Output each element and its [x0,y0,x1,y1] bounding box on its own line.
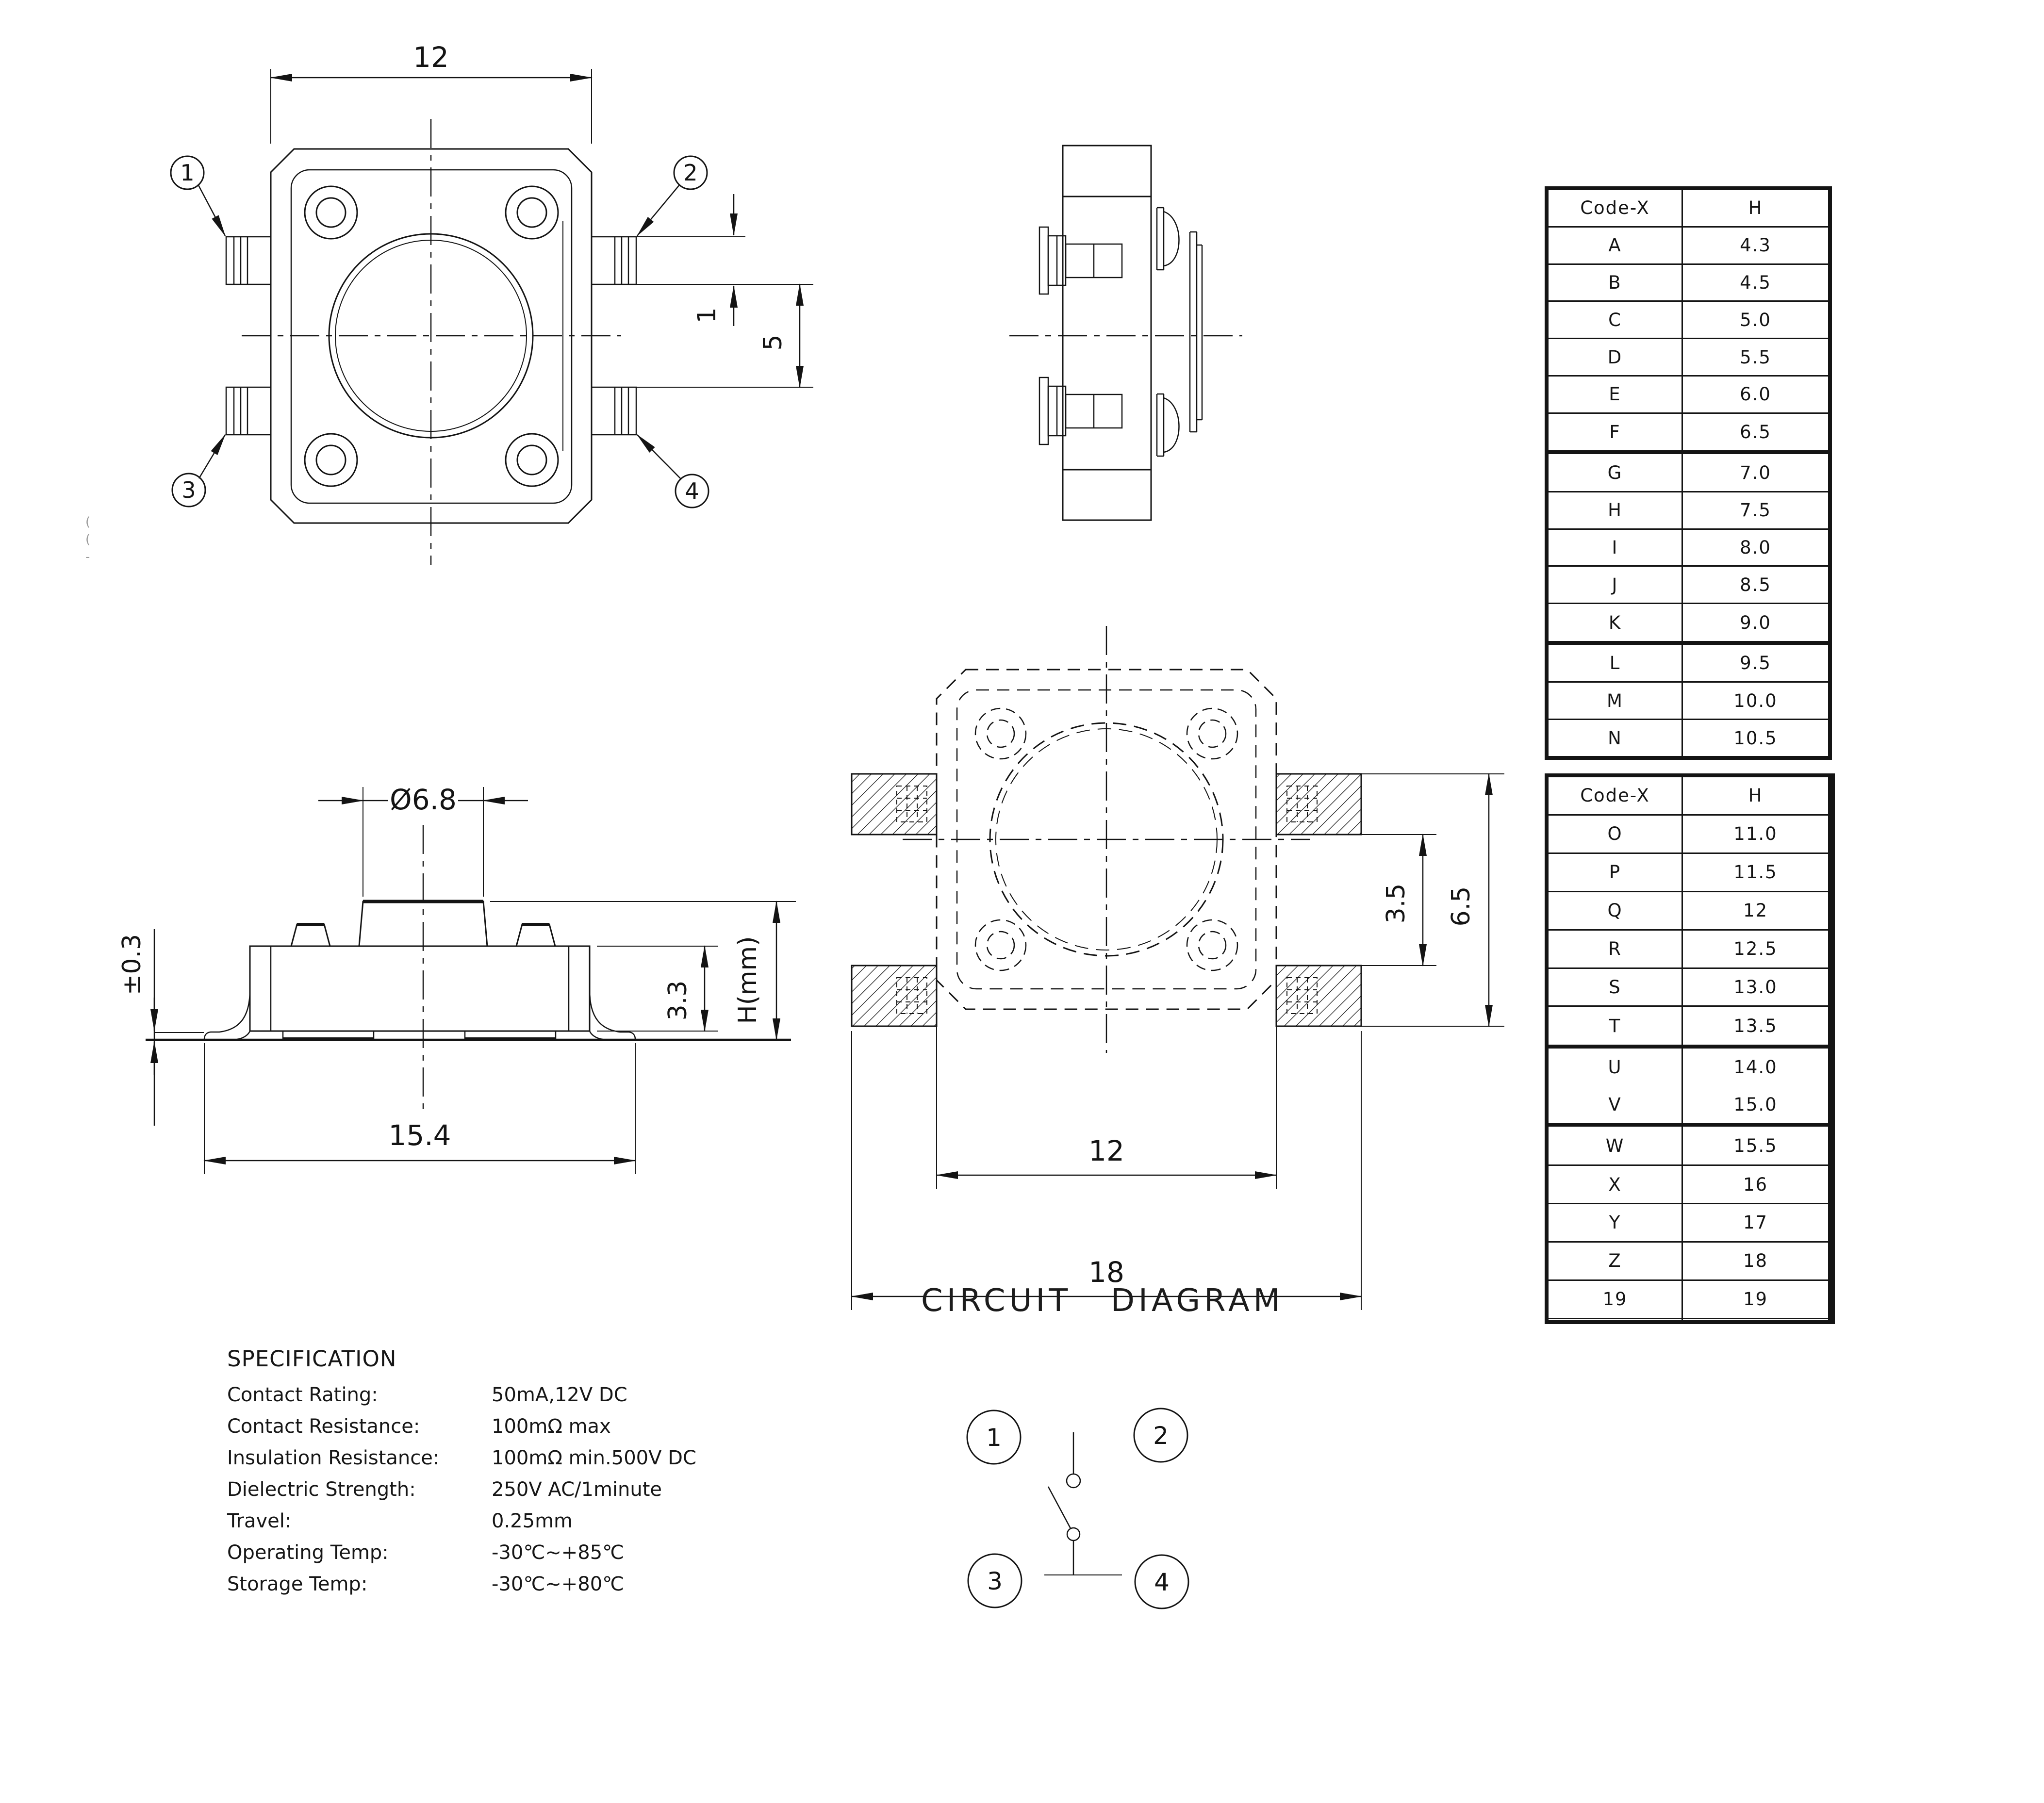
specification-block: SPECIFICATION Contact Rating:50mA,12V DC… [227,1343,696,1600]
code-table-row: C5.0 [1548,301,1829,339]
datasheet-page: { "drawing": { "top_view": { "pin_labels… [0,0,2044,1803]
spec-row: Storage Temp:-30℃~+80℃ [227,1569,696,1600]
circuit-pin4-label: 4 [1154,1568,1170,1596]
code-table-cell: T [1548,1006,1682,1047]
code-table-cell: 9.5 [1682,643,1829,682]
code-table-cell: 4.3 [1682,227,1829,264]
dim-total-height-label: H(mm) [733,936,762,1024]
code-table-row: W15.5 [1548,1125,1829,1165]
code-table-header: H [1682,777,1829,815]
pin-callouts [171,156,709,508]
dim-pad-span-label: 6.5 [1447,886,1476,927]
spec-label: Operating Temp: [227,1537,492,1569]
dim-pin-gap-label: 5 [758,334,788,350]
code-table-cell: 10.0 [1682,682,1829,720]
code-table-cell: M [1548,682,1682,720]
front-view [146,787,796,1174]
code-table-row: V15.0 [1548,1086,1829,1125]
code-table-header: Code-X [1548,777,1682,815]
code-table-cell: 9.0 [1682,604,1829,643]
code-table-cell: F [1548,413,1682,452]
code-table-cell: Y [1548,1204,1682,1242]
code-table-cell: 8.0 [1682,529,1829,566]
code-table-row: 1919 [1548,1280,1829,1318]
spec-value: -30℃~+80℃ [492,1569,624,1600]
code-table-row: Q12 [1548,891,1829,930]
code-table-cell: 12 [1682,891,1829,930]
code-table-row [1548,1318,1829,1321]
dim-overall-width [204,1043,635,1174]
code-table-cell: I [1548,529,1682,566]
code-table-cell: 19 [1682,1280,1829,1318]
pcb-view [852,626,1504,1310]
code-table-cell: G [1548,452,1682,492]
code-table-cell: 18 [1682,1242,1829,1280]
spec-label: Dielectric Strength: [227,1474,492,1506]
code-table-cell: 6.5 [1682,413,1829,452]
circuit-pin3-label: 3 [987,1567,1003,1595]
side-view [1009,146,1242,520]
code-table-cell: 15.0 [1682,1086,1829,1125]
code-table-row: P11.5 [1548,853,1829,891]
code-table-row: O11.0 [1548,815,1829,853]
code-table-cell: 7.5 [1682,492,1829,529]
code-table-row: F6.5 [1548,413,1829,452]
code-table-cell: N [1548,720,1682,757]
code-table-row: E6.0 [1548,376,1829,413]
code-table-row: A4.3 [1548,227,1829,264]
code-table-cell: 19 [1548,1280,1682,1318]
front-leads [154,990,635,1039]
code-table-header: Code-X [1548,190,1682,227]
spec-label: Contact Resistance: [227,1411,492,1442]
circuit-pin1-label: 1 [986,1424,1002,1452]
code-table-row: R12.5 [1548,930,1829,968]
dim-lead-thickness-label: ±0.3 [117,934,147,995]
dim-body-height-label: 3.3 [663,981,692,1021]
centerlines [242,119,621,565]
code-table-cell: 8.5 [1682,566,1829,604]
front-body [250,946,590,1031]
code-table-row: I8.0 [1548,529,1829,566]
code-table-row: N10.5 [1548,720,1829,757]
code-table-cell: P [1548,853,1682,891]
code-table-row: H7.5 [1548,492,1829,529]
pin1-callout-label: 1 [180,160,194,186]
code-table-cell: A [1548,227,1682,264]
switch-symbol [1044,1432,1122,1575]
code-table-cell: J [1548,566,1682,604]
code-table-cell [1548,1318,1682,1321]
dim-overall-width-label: 15.4 [388,1119,451,1152]
spec-label: Storage Temp: [227,1569,492,1600]
code-table-cell: X [1548,1165,1682,1204]
code-table-header: H [1682,190,1829,227]
code-table-cell: 4.5 [1682,264,1829,301]
spec-value: -30℃~+85℃ [492,1537,624,1569]
spec-value: 100mΩ max [492,1411,611,1442]
spec-value: 50mA,12V DC [492,1379,627,1411]
pin4-callout-label: 4 [685,478,699,504]
height-code-table-a-n: Code-XHA4.3B4.5C5.0D5.5E6.0F6.5G7.0H7.5I… [1545,186,1832,760]
height-code-table-o-19: Code-XHO11.0P11.5Q12R12.5S13.0T13.5U14.0… [1545,773,1835,1324]
code-table-cell: B [1548,264,1682,301]
pcb-centerlines [903,626,1310,1053]
side-stem [1157,208,1202,456]
code-table-row: L9.5 [1548,643,1829,682]
code-table-cell: 17 [1682,1204,1829,1242]
code-table-row: Y17 [1548,1204,1829,1242]
pin2-callout-label: 2 [683,160,697,186]
code-table-cell: D [1548,339,1682,376]
code-table-row: Z18 [1548,1242,1829,1280]
spec-row: Travel:0.25mm [227,1506,696,1537]
spec-label: Insulation Resistance: [227,1442,492,1474]
code-table-row: J8.5 [1548,566,1829,604]
code-table-cell: 6.0 [1682,376,1829,413]
code-table-row: U14.0 [1548,1047,1829,1086]
spec-row: Contact Resistance:100mΩ max [227,1411,696,1442]
code-table-row: X16 [1548,1165,1829,1204]
code-table-row: B4.5 [1548,264,1829,301]
code-table-cell: 16 [1682,1165,1829,1204]
dim-pad-gap-label: 3.5 [1382,884,1411,924]
code-table-row: M10.0 [1548,682,1829,720]
spec-row: Contact Rating:50mA,12V DC [227,1379,696,1411]
code-table-cell: U [1548,1047,1682,1086]
dim-stem-diameter-label: Ø6.8 [390,783,457,816]
code-table-row: K9.0 [1548,604,1829,643]
code-table-cell: Z [1548,1242,1682,1280]
code-table-cell: 7.0 [1682,452,1829,492]
code-table-cell: 10.5 [1682,720,1829,757]
code-table-cell: 15.5 [1682,1125,1829,1165]
code-table-cell: R [1548,930,1682,968]
dim-pin-width-label: 1 [692,307,722,323]
spec-value: 100mΩ min.500V DC [492,1442,696,1474]
code-table-cell [1682,1318,1829,1321]
code-table-cell: E [1548,376,1682,413]
spec-label: Travel: [227,1506,492,1537]
dim-pin-spacing [636,194,813,387]
code-table-cell: 12.5 [1682,930,1829,968]
spec-value: 0.25mm [492,1506,573,1537]
spec-row: Insulation Resistance:100mΩ min.500V DC [227,1442,696,1474]
code-table-cell: Q [1548,891,1682,930]
code-table-cell: H [1548,492,1682,529]
circuit-diagram-title: CIRCUIT DIAGRAM [921,1283,1284,1319]
code-table-row: S13.0 [1548,968,1829,1006]
spec-value: 250V AC/1minute [492,1474,662,1506]
code-table-cell: K [1548,604,1682,643]
code-table-cell: S [1548,968,1682,1006]
circuit-pin2-label: 2 [1153,1422,1169,1450]
code-table-row: G7.0 [1548,452,1829,492]
dim-top-width-label: 12 [413,41,449,74]
code-table-row: D5.5 [1548,339,1829,376]
code-table-cell: 5.5 [1682,339,1829,376]
code-table-cell: O [1548,815,1682,853]
scan-artifact-marks: ( ( - [85,513,90,566]
dim-body-height [597,946,718,1031]
spec-row: Dielectric Strength:250V AC/1minute [227,1474,696,1506]
code-table-cell: 11.0 [1682,815,1829,853]
code-table-cell: 11.5 [1682,853,1829,891]
code-table-row: T13.5 [1548,1006,1829,1047]
pin3-callout-label: 3 [181,477,196,503]
spec-row: Operating Temp:-30℃~+85℃ [227,1537,696,1569]
code-table-cell: V [1548,1086,1682,1125]
code-table-cell: C [1548,301,1682,339]
code-table-cell: L [1548,643,1682,682]
code-table-cell: 14.0 [1682,1047,1829,1086]
specification-title: SPECIFICATION [227,1343,696,1375]
spec-label: Contact Rating: [227,1379,492,1411]
dim-pcb-body-width-label: 12 [1088,1134,1124,1167]
code-table-cell: 13.0 [1682,968,1829,1006]
side-body [1063,146,1151,520]
code-table-cell: 13.5 [1682,1006,1829,1047]
code-table-cell: W [1548,1125,1682,1165]
code-table-cell: 5.0 [1682,301,1829,339]
